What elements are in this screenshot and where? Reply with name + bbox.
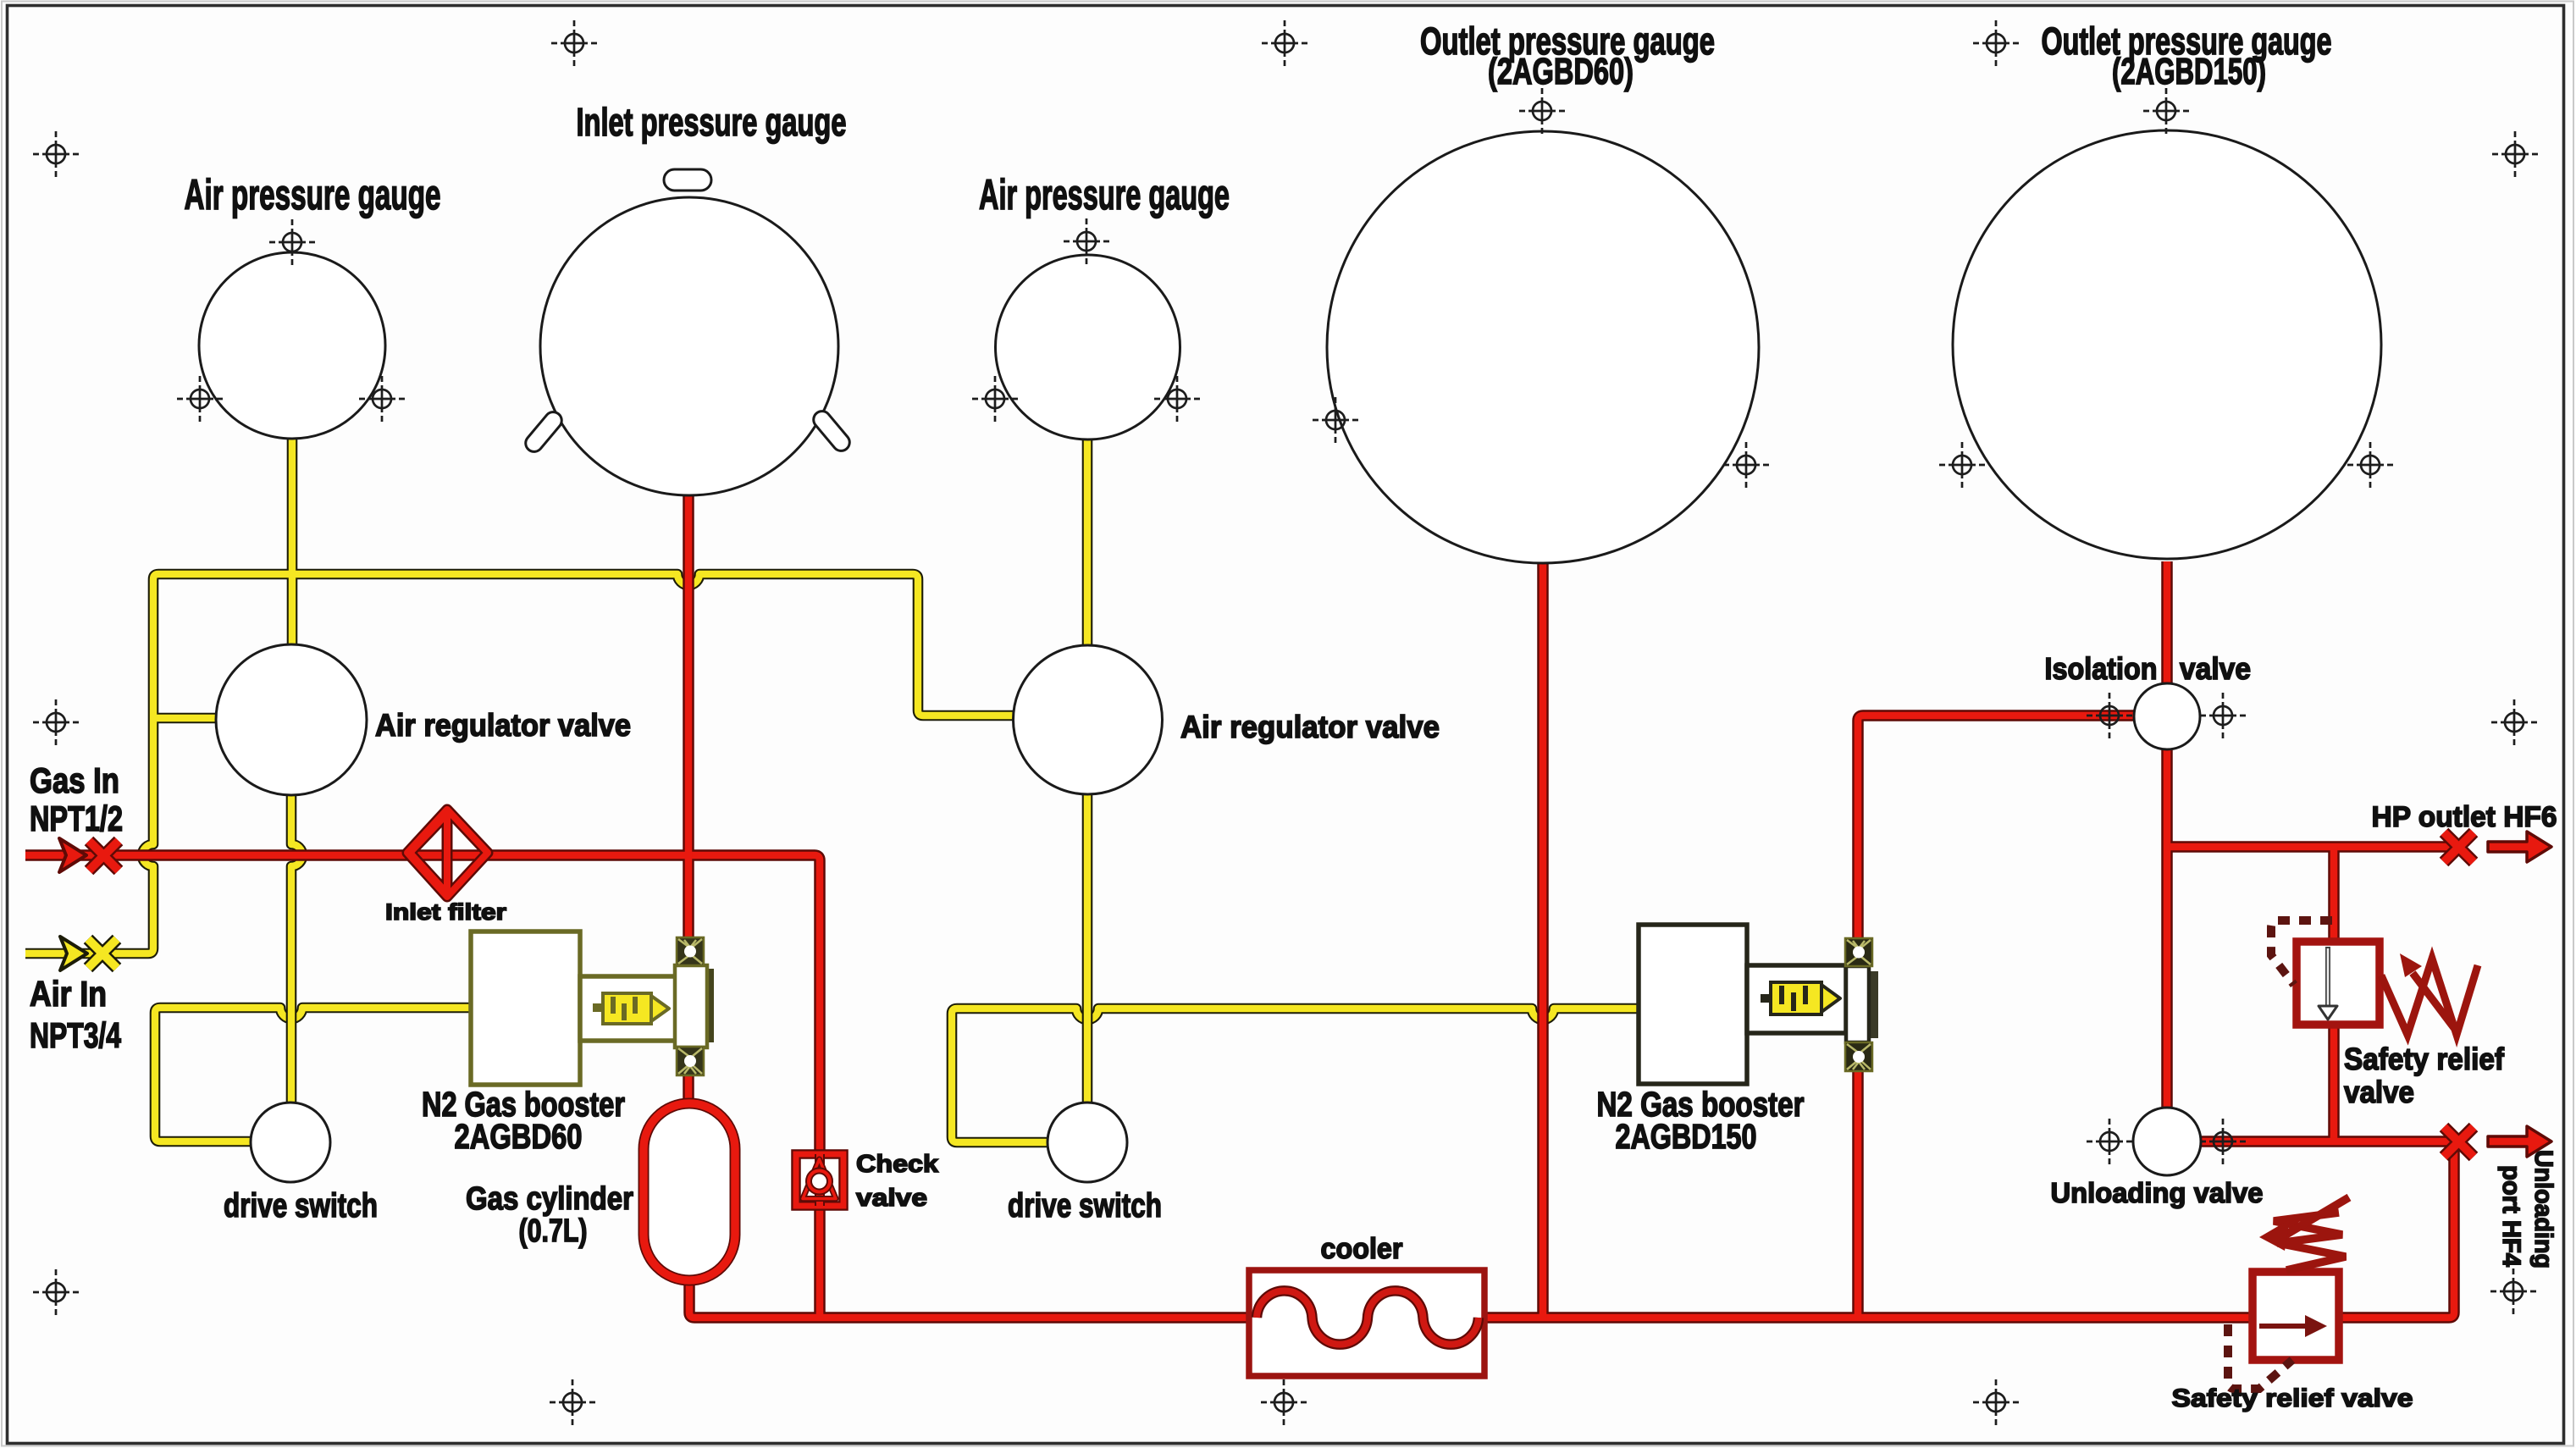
svg-text:Unloading: Unloading [2529,1150,2557,1268]
svg-text:Inlet pressure gauge: Inlet pressure gauge [577,100,847,144]
svg-text:Isolation: Isolation [2045,651,2158,686]
svg-text:Air In: Air In [30,974,107,1014]
svg-text:cooler: cooler [1321,1233,1403,1265]
svg-text:NPT3/4: NPT3/4 [30,1015,121,1055]
svg-text:Safety relief valve: Safety relief valve [2172,1384,2413,1412]
svg-text:2AGBD60: 2AGBD60 [455,1117,583,1156]
svg-text:Gas cylinder: Gas cylinder [466,1181,633,1217]
svg-text:Air pressure gauge: Air pressure gauge [979,171,1230,218]
svg-text:Air regulator valve: Air regulator valve [375,708,631,743]
svg-text:Inlet filter: Inlet filter [385,899,507,925]
svg-text:drive switch: drive switch [1008,1187,1162,1224]
svg-text:port HF4: port HF4 [2497,1165,2525,1267]
svg-text:Check: Check [856,1151,939,1178]
svg-text:drive switch: drive switch [224,1187,378,1224]
svg-text:Gas In: Gas In [30,760,119,800]
svg-text:Air regulator valve: Air regulator valve [1180,710,1440,744]
svg-text:2AGBD150: 2AGBD150 [1616,1117,1757,1156]
svg-text:Safety relief: Safety relief [2344,1042,2505,1076]
svg-text:valve: valve [2180,651,2251,686]
svg-text:valve: valve [856,1185,927,1212]
svg-text:Unloading valve: Unloading valve [2051,1177,2264,1208]
svg-text:valve: valve [2344,1075,2414,1109]
svg-text:Air pressure gauge: Air pressure gauge [185,171,441,218]
svg-text:NPT1/2: NPT1/2 [30,799,123,838]
svg-text:HP outlet HF6: HP outlet HF6 [2372,801,2557,833]
svg-text:(0.7L): (0.7L) [519,1213,588,1249]
svg-text:(2AGBD60): (2AGBD60) [1488,51,1633,92]
svg-text:(2AGBD150): (2AGBD150) [2112,51,2266,92]
